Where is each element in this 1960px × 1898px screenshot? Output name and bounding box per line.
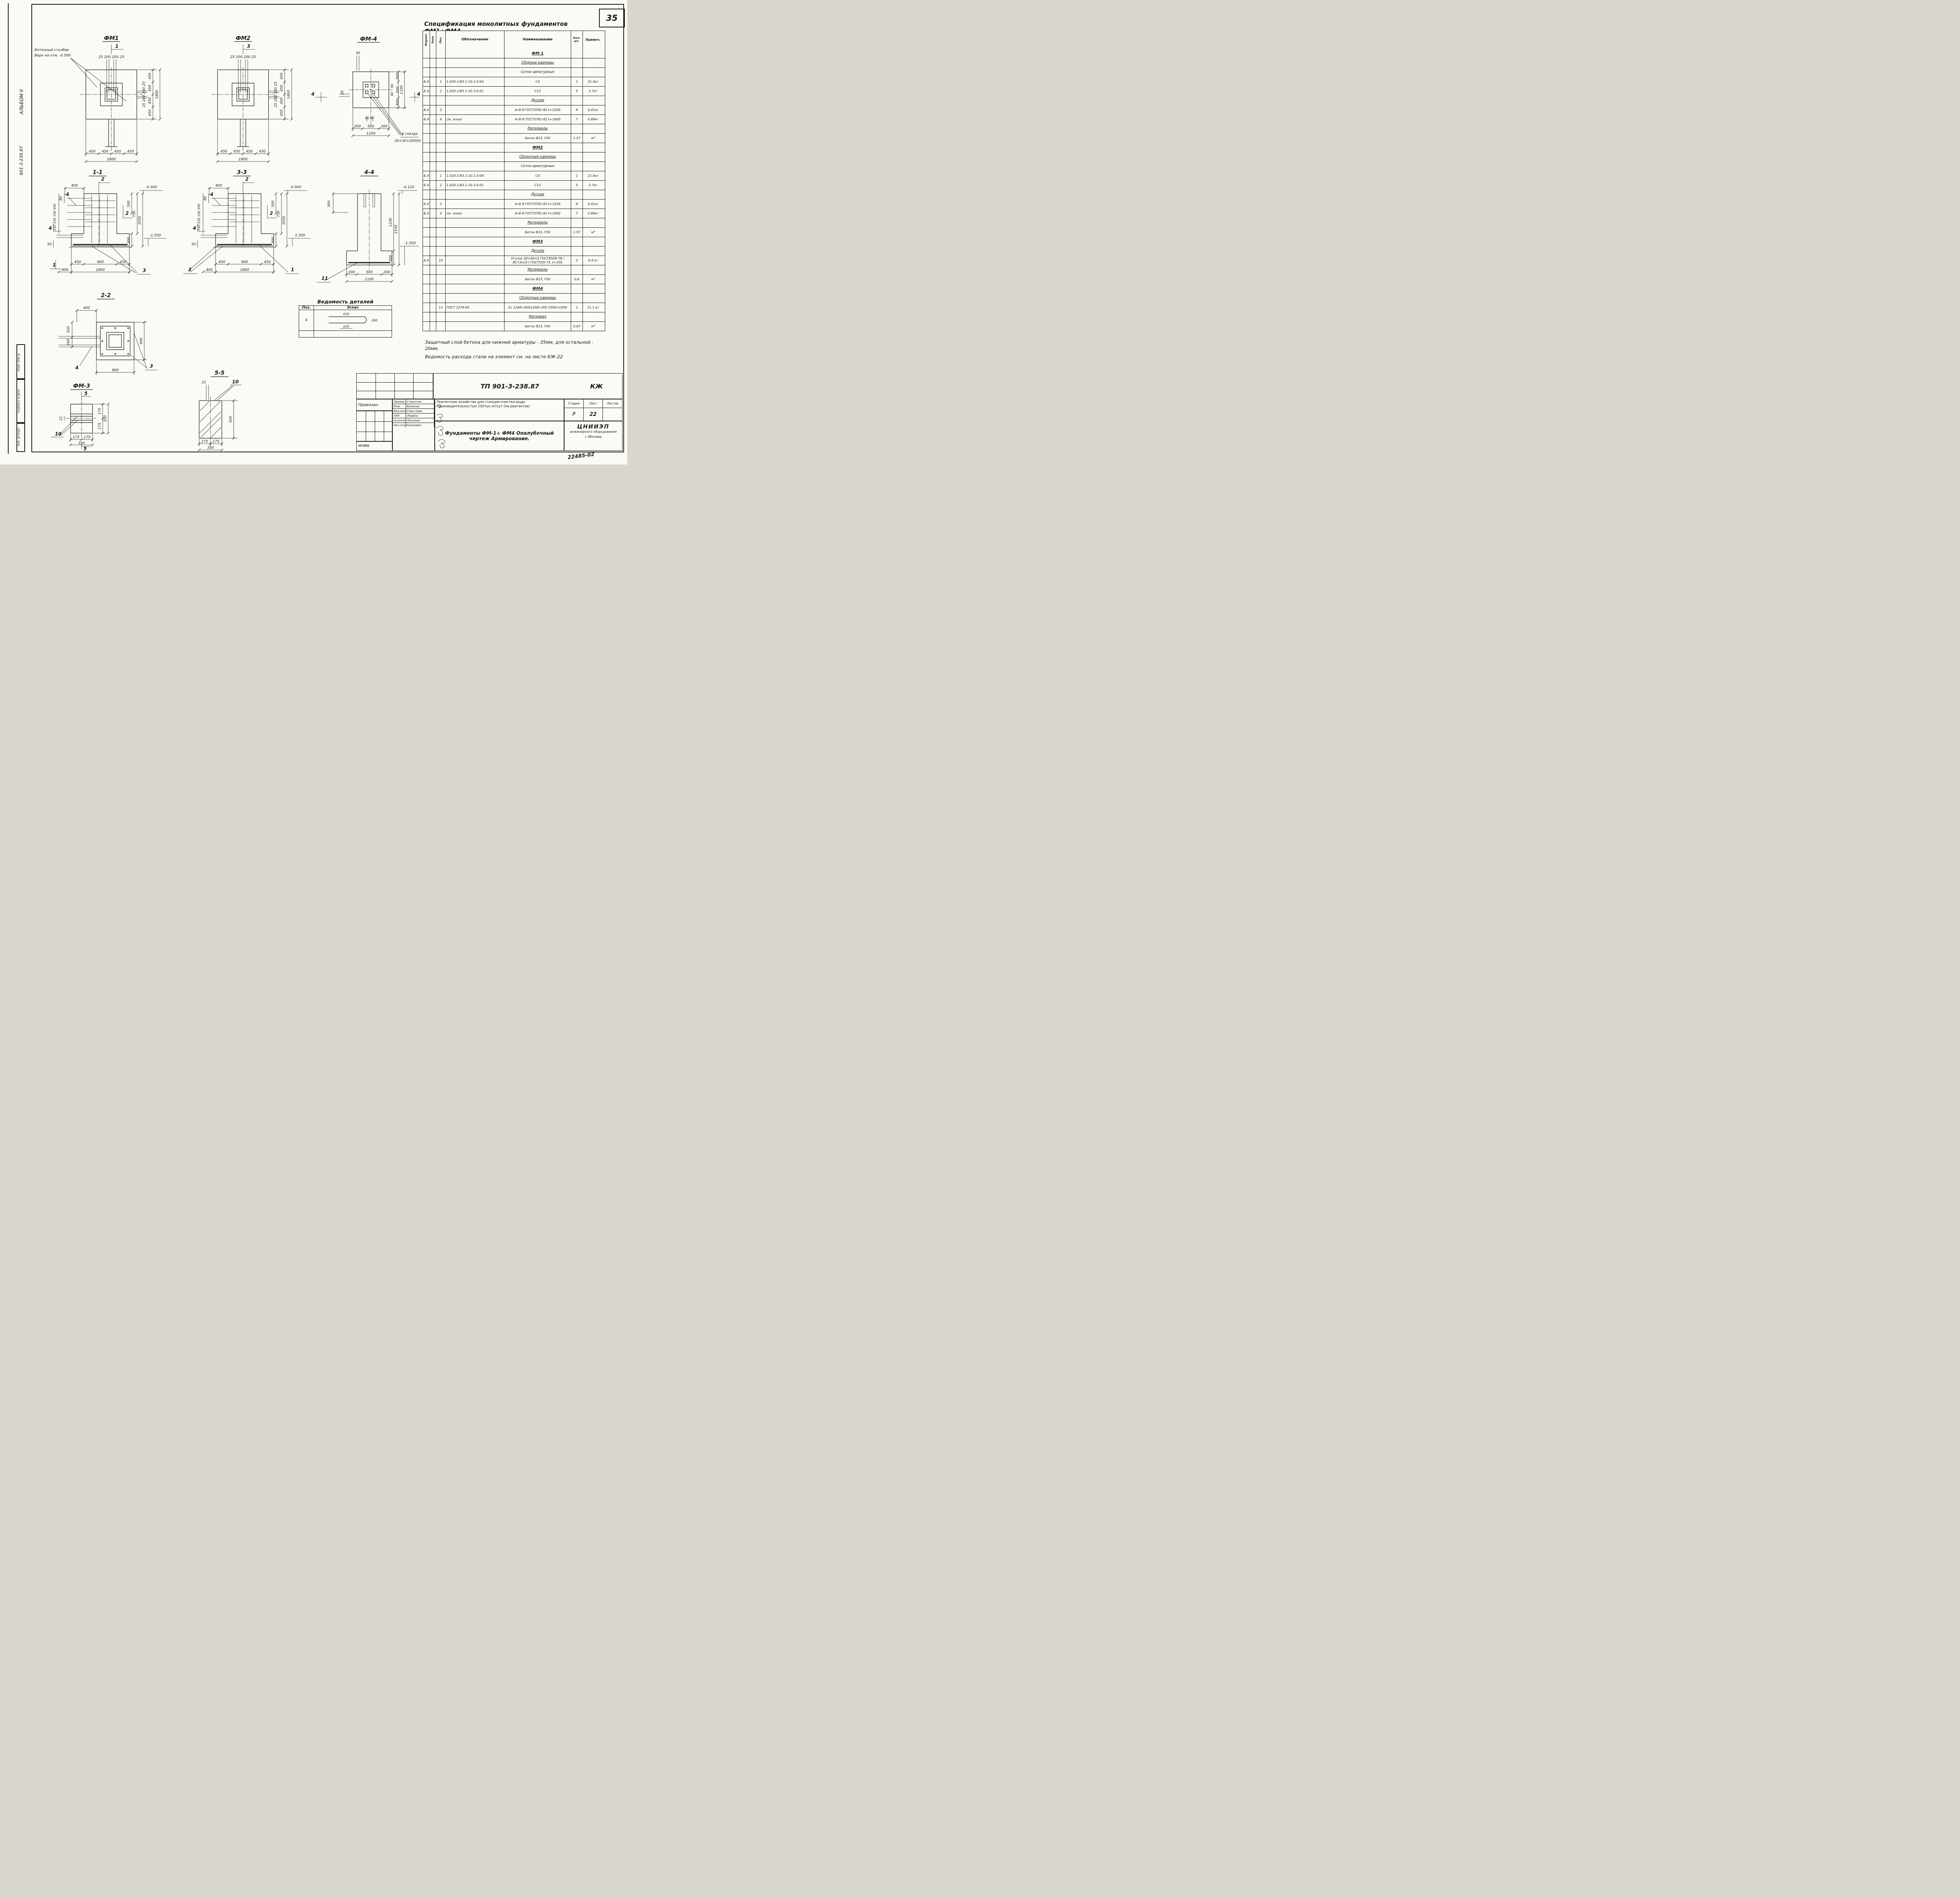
mark-kz: КЖ [590, 383, 603, 390]
spec-cell [423, 134, 430, 143]
spec-cell: Сборные единицы [505, 58, 571, 67]
pos-label: 3 [143, 268, 146, 273]
spec-cell [430, 200, 436, 209]
note-text: 4 гнезда [401, 132, 417, 136]
spec-cell: 8 [571, 105, 583, 114]
dim-label: 450 [102, 150, 108, 154]
col-header: Примеч. [583, 31, 603, 49]
cut-label: 3 [247, 44, 250, 49]
drawing-section-2-2: 2-2 400 320 260 4 3 900 900 [51, 291, 161, 383]
dim-label: 450 [264, 260, 270, 264]
stage-label: Стадия [564, 399, 584, 408]
spec-cell [430, 237, 436, 246]
spec-cell [423, 162, 430, 171]
spec-row: Материалы [423, 265, 605, 274]
dim-label: 400 [71, 184, 78, 188]
spec-cell [430, 265, 436, 274]
spec-cell [446, 124, 505, 133]
spec-cell: 2с 12АIII-200/12АIII-200 1050×1050 [505, 303, 571, 312]
pos-label: 4 [210, 192, 213, 197]
dim-label: 1800 [287, 90, 291, 99]
spec-cell [423, 228, 430, 237]
spec-cell [423, 284, 430, 293]
spec-cell [430, 143, 436, 152]
spec-cell: 1.020-1/83.1-10.1.0-04 [446, 77, 505, 86]
spec-cell: 11.1 кг [583, 303, 603, 312]
spec-cell: 2 [571, 256, 583, 265]
dim-label: 450 [280, 109, 284, 116]
drawing-sheet: 35 АЛЬБОМ II 901-3-238.87 ВЗАМ. ИНВ № ПО… [0, 0, 627, 465]
spec-cell [423, 96, 430, 105]
dim-label: 25 200 200 25 [142, 82, 146, 107]
spec-cell: 1 [571, 303, 583, 312]
spec-cell [423, 247, 430, 256]
spec-cell [571, 312, 583, 321]
spec-cell [423, 58, 430, 67]
spec-cell: 1.020-1/83.1-10.3.0-01 [446, 181, 505, 190]
col-header: Поз. [299, 306, 314, 310]
sig-role: ГИП [393, 414, 406, 418]
org-city: г Москва [564, 435, 622, 439]
sidebar-code-label: 901-3-238.87 [19, 129, 24, 192]
spec-cell: Б.4 [423, 105, 430, 114]
spec-cell [436, 162, 446, 171]
spec-cell: 4 [436, 209, 446, 218]
dim-label: 30 [341, 90, 345, 95]
dim-label: 500 [367, 125, 374, 129]
spec-cell [446, 312, 505, 321]
dim-label: 1230 [389, 218, 393, 227]
dim-label: 350 [207, 446, 214, 450]
spec-cell: Б.4 [423, 200, 430, 209]
dim-label: 175 [212, 440, 219, 444]
spec-cell [571, 152, 583, 161]
spec-cell: С13 [505, 87, 571, 96]
spec-cell: 8 [571, 200, 583, 209]
spec-cell [583, 312, 603, 321]
dim-label: 450 [148, 97, 152, 104]
drawing-title: 4-4 [364, 169, 374, 176]
spec-cell: 21.6кг [583, 171, 603, 180]
spec-table: Формат Зона Поз. Обозначение Наименовани… [423, 31, 605, 331]
spec-cell: 5 [571, 87, 583, 96]
spec-row: 11ГОСТ 2379-852с 12АIII-200/12АIII-200 1… [423, 303, 605, 312]
spec-cell: 0.41кг [583, 200, 603, 209]
spec-cell: 1 [571, 77, 583, 86]
dim-label: 450 [127, 150, 134, 154]
sig-role: Н.контр. [393, 418, 406, 423]
drawing-title: ФМ1 [104, 35, 119, 42]
spec-cell [423, 322, 430, 331]
spec-cell [430, 312, 436, 321]
spec-cell [436, 284, 446, 293]
spec-row: ФМ2 [423, 143, 605, 152]
spec-row: Б.410Уголок 50×50×5 ГОСТ8509-78 / ВСт3кп… [423, 256, 605, 265]
dim-label: 1100 [365, 278, 374, 281]
spec-cell [583, 96, 603, 105]
spec-header-row: Формат Зона Поз. Обозначение Наименовани… [423, 31, 605, 49]
pos-label: 1 [291, 267, 294, 272]
col-header: Поз. [439, 36, 443, 43]
spec-cell [446, 58, 505, 67]
spec-cell: Детали [505, 190, 571, 199]
spec-cell: ФМ2 [505, 143, 571, 152]
spec-cell: А-III-8 ГОСТ5781-82 ℓ=1600 [505, 209, 571, 218]
spec-cell: Б.4 [423, 209, 430, 218]
dim-label: 175 [98, 408, 102, 414]
spec-row: ФМ 1 [423, 49, 605, 58]
org-name: ЦНИИЭП [564, 424, 622, 430]
spec-row: Сборные единицы [423, 58, 605, 67]
pos-label: 10 [55, 431, 62, 437]
spec-cell: Б.4 [423, 87, 430, 96]
sig-role: Вед.инж. [393, 409, 406, 413]
dim-label: 175 [98, 423, 102, 429]
dim-label: 1530 [394, 225, 398, 234]
spec-cell [446, 162, 505, 171]
spec-row: Сборочные единицы [423, 293, 605, 303]
sig-role: Нач.отд. [393, 423, 406, 427]
spec-cell: м³ [583, 275, 603, 284]
spec-cell [423, 190, 430, 199]
binding-cell: Привязан [356, 399, 392, 411]
cut-label: 2 [270, 210, 273, 216]
dim-label: 500 [396, 86, 400, 93]
spec-cell [446, 275, 505, 284]
spec-cell [571, 247, 583, 256]
spec-row: Бетон В15, F501.57м³ [423, 227, 605, 237]
spec-cell [436, 228, 446, 237]
spec-row: Детали [423, 246, 605, 256]
spec-cell: 7 [571, 115, 583, 124]
spec-cell [571, 190, 583, 199]
spec-cell [436, 275, 446, 284]
dim-label: 300 [383, 270, 390, 274]
spec-cell: Детали [505, 247, 571, 256]
dim-label: 300 [396, 99, 400, 106]
spec-cell: Бетон В15, F50 [505, 275, 571, 284]
col-header: Обозначение [446, 31, 505, 49]
drawing-section-3-3: 3-3 2 400 4 80 150 150 150 100 50 4 500 … [177, 168, 314, 285]
spec-cell: см. эскиз [446, 209, 505, 218]
spec-cell [430, 247, 436, 256]
spec-cell [436, 58, 446, 67]
cut-label: 5 [83, 446, 87, 452]
signature-scribble [433, 401, 457, 450]
dim-label: 500 [271, 200, 275, 207]
dim-label: 500 [229, 416, 233, 423]
spec-cell: 3 [436, 200, 446, 209]
elev-label: -0.120 [403, 185, 414, 189]
stage-value: Р [564, 408, 584, 421]
pos-label: 3 [188, 267, 191, 272]
spec-cell [436, 294, 446, 303]
spec-cell: 2 [436, 181, 446, 190]
dim-label: 1800 [240, 268, 249, 272]
note-line: Защитный слой бетона для нижней арматуры… [425, 339, 602, 352]
dim-label: 450 [114, 150, 121, 154]
spec-cell [446, 294, 505, 303]
spec-row: Б.43А-III-8 ГОСТ5781-82 ℓ=103080.41кг [423, 199, 605, 209]
spec-cell: 1.57 [571, 134, 583, 143]
spec-cell [583, 247, 603, 256]
sig-name: Левина [406, 414, 434, 418]
spec-cell [430, 303, 436, 312]
spec-cell [430, 58, 436, 67]
sheet-label: Лист [584, 399, 603, 408]
spec-cell [571, 218, 583, 227]
spec-cell [571, 162, 583, 171]
drawing-title: ФМ-4 [360, 36, 377, 42]
spec-cell: Сборочные единицы [505, 152, 571, 161]
pos-label: 11 [321, 276, 328, 281]
spec-cell: Уголок 50×50×5 ГОСТ8509-78 / ВСт3кп2-I Г… [505, 256, 571, 265]
spec-cell [446, 237, 505, 246]
dim-label: 50 [47, 243, 52, 247]
pos-cell: 4 [299, 310, 314, 330]
dim-label: 30 [356, 51, 360, 55]
dim-label: 670 [343, 325, 349, 328]
dim-label: 500 [127, 200, 131, 207]
spec-cell: 11 [436, 303, 446, 312]
dim-label: 1800 [107, 158, 116, 161]
spec-cell [436, 190, 446, 199]
spec-cell [583, 218, 603, 227]
spec-cell [436, 152, 446, 161]
spec-cell [436, 265, 446, 274]
elev-label: -1.550 [404, 241, 416, 245]
spec-cell: Б.4 [423, 171, 430, 180]
sig-name: Смыслова [406, 409, 434, 413]
pos-label: 1 [53, 262, 56, 268]
spec-cell: 2.7кг [583, 87, 603, 96]
spec-cell: Б.4 [423, 115, 430, 124]
pos-label: 4 [75, 365, 78, 370]
spec-cell [446, 247, 505, 256]
dim-label: 260 [371, 319, 377, 322]
spec-cell [571, 284, 583, 293]
spec-cell [436, 134, 446, 143]
sig-role: Инж. [393, 404, 406, 408]
dim-label: 450 [148, 73, 152, 79]
spec-cell [430, 49, 436, 58]
spec-cell: 0.4 кг [583, 256, 603, 265]
sidebar-stamp-vzam: ВЗАМ. ИНВ № [16, 344, 25, 380]
dim-label: 450 [220, 150, 227, 154]
dim-label: 300 [389, 255, 393, 261]
spec-cell [583, 124, 603, 133]
spec-cell: С13 [505, 181, 571, 190]
dim-label: 25 200 200 25 [274, 82, 278, 107]
spec-cell [446, 265, 505, 274]
cut-label: 2 [125, 210, 129, 216]
spec-cell [583, 294, 603, 303]
dim-label: 1800 [239, 158, 248, 161]
dim-label: 450 [148, 85, 152, 91]
dim-label: 80 [203, 196, 207, 201]
spec-cell [446, 256, 505, 265]
spec-cell [436, 124, 446, 133]
spec-cell [430, 218, 436, 227]
dim-label: 900 [97, 260, 103, 264]
spec-cell [436, 49, 446, 58]
dim-label: 1100 [400, 85, 404, 94]
dim-label: 400 [215, 184, 222, 188]
dim-label: 1050 [138, 216, 142, 225]
title-block: ТП 901-3-238.87 КЖ Привязан ИНВ№ Провер.… [356, 373, 622, 451]
dim-label: 90 [390, 84, 394, 88]
col-header: Зона [432, 36, 435, 44]
dim-label: 300 [271, 237, 275, 243]
dim-label: 500 [366, 270, 372, 274]
drawing-fm1-plan: ФМ1 1 25 200 200 25 Бетонный столбик Вер… [33, 34, 165, 176]
inv-cell: ИНВ№ [356, 441, 392, 451]
sig-name: Письман [406, 418, 434, 423]
fm1-linework [71, 45, 161, 163]
spec-cell: ФМ3 [505, 237, 571, 246]
cut-label: 4 [311, 91, 314, 97]
sig-name: Красавин [406, 423, 434, 427]
spec-cell [446, 228, 505, 237]
dim-label: 450 [89, 150, 95, 154]
spec-cell [430, 134, 436, 143]
spec-cell [571, 237, 583, 246]
spec-cell [436, 322, 446, 331]
dim-label: 350 [78, 441, 85, 445]
elev-label: -1.550 [149, 234, 161, 238]
drawing-title: 2-2 [101, 292, 111, 299]
pos-label: 4 [192, 225, 196, 231]
dim-label: 175 [201, 440, 208, 444]
spec-cell: 1 [436, 171, 446, 180]
spec-cell: 1.57 [571, 228, 583, 237]
spec-cell: 1 [571, 171, 583, 180]
spec-row: Материал [423, 312, 605, 321]
drawing-section-5-5: 5-5 21 10 500 175 175 350 [169, 368, 270, 451]
spec-cell: 1.020-1/83.1-10.1.0-04 [446, 171, 505, 180]
drawing-fm4-plan: ФМ-4 30 4 30 90 90 300 500 300 1100 4 90… [310, 34, 421, 164]
spec-cell [430, 209, 436, 218]
dim-label: 80 [59, 196, 63, 201]
spec-row: Бетон В15, F500.67м³ [423, 321, 605, 331]
spec-cell [446, 105, 505, 114]
dim-label: 450 [280, 73, 284, 79]
dim-label: 21 [59, 416, 63, 420]
spec-cell: 2 [436, 87, 446, 96]
spec-cell: Бетон В15, F50 [505, 228, 571, 237]
org-line2: инженерного оборудования [564, 430, 622, 434]
spec-row: Бетон В15, F501.57м³ [423, 133, 605, 143]
spec-cell: Б.4 [423, 77, 430, 86]
spec-cell [571, 96, 583, 105]
spec-cell: ГОСТ 2379-85 [446, 303, 505, 312]
dim-label: 90 [390, 92, 394, 96]
spec-cell: 5 [571, 181, 583, 190]
spec-cell: м³ [583, 322, 603, 331]
spec-cell [430, 87, 436, 96]
dim-label: 670 [343, 312, 349, 316]
dim-label: 750 [132, 210, 136, 217]
spec-cell [571, 294, 583, 303]
dim-label: 450 [233, 150, 240, 154]
spec-row: Б.421.020-1/83.1-10.3.0-01С1352.7кг [423, 180, 605, 190]
spec-row: Бетон В15, F500.6м³ [423, 274, 605, 284]
empty-grid [356, 411, 392, 441]
dim-label: 300 [354, 125, 361, 129]
spec-cell: Б.4 [423, 256, 430, 265]
spec-cell [430, 181, 436, 190]
spec-cell: С4 [505, 171, 571, 180]
spec-cell: Детали [505, 96, 571, 105]
spec-cell [446, 143, 505, 152]
spec-cell [423, 265, 430, 274]
dim-label: 300 [127, 237, 131, 243]
spec-cell: Бетон В15, F50 [505, 134, 571, 143]
drawing-section-1-1: 1-1 2 400 4 80 150 150 150 100 50 4 500 … [33, 168, 176, 285]
spec-cell: А-III-8 ГОСТ5781-82 ℓ=1600 [505, 115, 571, 124]
spec-cell [571, 143, 583, 152]
sheets-label: Листов [603, 399, 622, 408]
spec-cell: Бетон В15, F50 [505, 322, 571, 331]
sidebar-stamp-podpis: ПОДПИСЬ И ДАТА [16, 378, 25, 424]
callout-text: Бетонный столбик [34, 48, 69, 52]
spec-cell [430, 275, 436, 284]
spec-cell [423, 68, 430, 77]
details-table: Поз. Эскиз 4 670 670 260 [299, 305, 392, 338]
dim-label: 21 [201, 381, 206, 385]
spec-row: Детали [423, 96, 605, 105]
dim-label: 750 [277, 210, 281, 217]
spec-cell [583, 237, 603, 246]
spec-cell: Б.4 [423, 181, 430, 190]
spec-cell [430, 68, 436, 77]
spec-cell: Сетки арматурные [505, 68, 571, 77]
dim-label: 175 [83, 435, 90, 439]
spec-cell: 0.67 [571, 322, 583, 331]
sheets-value [603, 408, 622, 421]
spec-cell [583, 284, 603, 293]
spec-cell [430, 190, 436, 199]
sig-role: Провер. [393, 399, 406, 404]
spec-cell: 7 [571, 209, 583, 218]
dim-label: 300 [396, 73, 400, 80]
dim-label: 25 200 200 25 [230, 55, 256, 59]
drawing-fm3-plan: ФМ-3 5 21 10 175 175 350 175 175 350 5 [46, 382, 140, 451]
dim-label: 400 [83, 306, 90, 310]
spec-row: Материалы [423, 218, 605, 227]
spec-cell [446, 134, 505, 143]
spec-cell [423, 303, 430, 312]
spec-cell [430, 124, 436, 133]
dim-label: 25 200 200 25 [98, 55, 124, 59]
cut-label: 1 [115, 44, 118, 49]
spec-cell [446, 96, 505, 105]
drawing-title: ФМ-3 [73, 383, 90, 389]
spec-cell [430, 228, 436, 237]
spec-row: Сетки арматурные [423, 161, 605, 171]
dim-label: 400 [62, 268, 68, 272]
spec-cell: 0.6 [571, 275, 583, 284]
dim-label: 900 [140, 338, 143, 344]
note-line: Ведомость расхода стали на элемент см. н… [425, 354, 602, 360]
drawing-title: 5-5 [214, 370, 225, 376]
spec-cell [436, 143, 446, 152]
col-header: Формат [425, 34, 428, 46]
spec-cell: 10 [436, 256, 446, 265]
dim-label: 150 150 150 100 [197, 204, 201, 231]
spec-cell: Материал [505, 312, 571, 321]
spec-cell: ФМ4 [505, 284, 571, 293]
